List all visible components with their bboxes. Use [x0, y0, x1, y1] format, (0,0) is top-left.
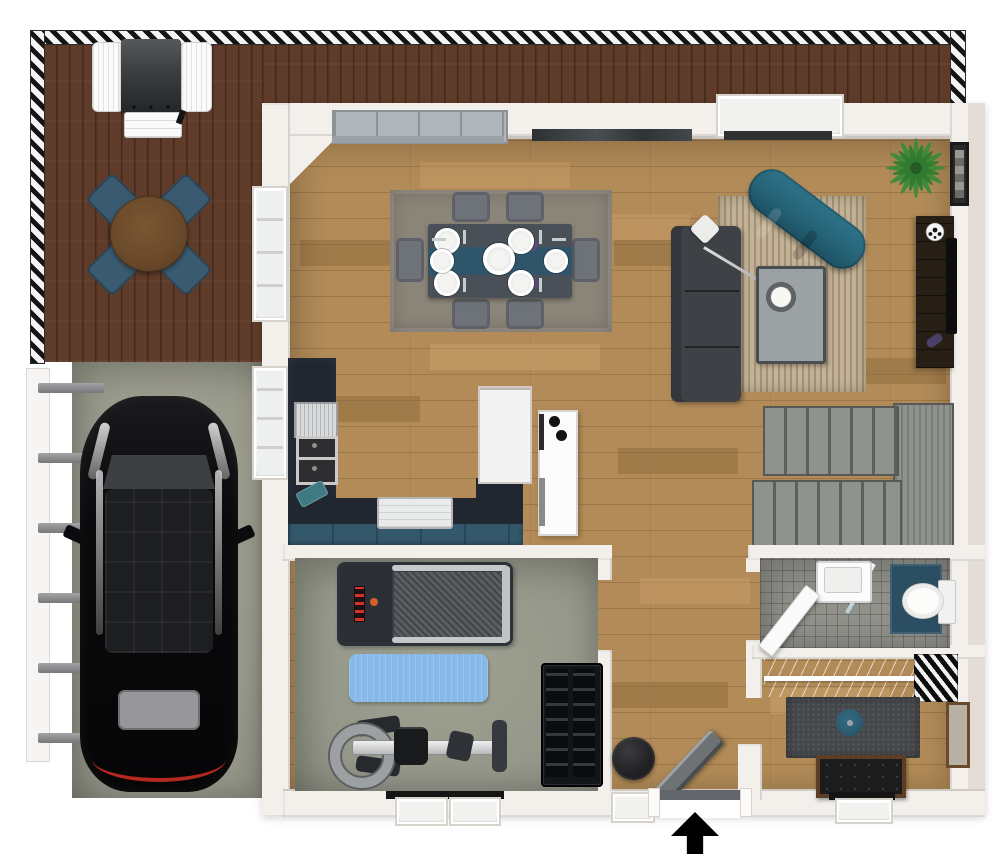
rower-beam	[352, 740, 506, 755]
island-rail	[539, 478, 545, 526]
wall-mirror[interactable]	[946, 702, 970, 768]
rower-flywheel	[330, 724, 394, 788]
burner	[549, 416, 560, 427]
entrance-arrow	[671, 812, 719, 854]
entry-side-wall	[738, 744, 762, 794]
floor-cushion-button	[847, 720, 853, 726]
range[interactable]	[294, 402, 338, 438]
car-side-glass-left	[96, 470, 103, 635]
dining-chair-bottom-1[interactable]	[452, 299, 490, 329]
grill-knobs	[128, 104, 174, 110]
garage-window-pane	[257, 371, 283, 475]
top-window-sill	[724, 131, 832, 140]
gym-window-1-pane	[400, 802, 443, 821]
outdoor-table[interactable]	[110, 196, 188, 272]
grill-body	[121, 39, 181, 113]
soccer-ball[interactable]	[925, 222, 945, 242]
rower-seat	[394, 727, 428, 765]
sofa[interactable]	[671, 226, 741, 402]
plate	[430, 249, 454, 273]
car-rear-window	[118, 690, 200, 730]
plate	[508, 270, 534, 296]
plate	[544, 249, 568, 273]
deck-railing-left	[30, 30, 45, 364]
car-side-glass-right	[215, 470, 222, 635]
grill-shelf-left	[92, 42, 124, 112]
treadmill-button	[370, 598, 378, 606]
treadmill-belt	[392, 570, 508, 642]
utensil	[463, 230, 466, 244]
hall-window-pane	[616, 797, 650, 818]
gym-window-2[interactable]	[449, 797, 501, 826]
rower-end-bar	[492, 720, 507, 772]
utensil	[552, 238, 566, 241]
tv[interactable]	[946, 238, 957, 334]
deck-window[interactable]	[252, 186, 288, 322]
garage-fence-rail	[26, 368, 50, 762]
arc-lamp-bulb	[771, 287, 791, 307]
coffee-table[interactable]	[756, 266, 826, 364]
plank-patch	[640, 578, 750, 604]
entry-opening[interactable]	[660, 800, 740, 818]
treadmill-endcap	[502, 566, 510, 642]
utensil	[539, 230, 542, 244]
closet-shelf-rail	[764, 676, 934, 681]
burner	[556, 430, 567, 441]
dining-chair-top-1[interactable]	[452, 192, 490, 222]
deck-window-pane	[257, 191, 283, 317]
counter-tray[interactable]	[377, 497, 453, 529]
entry-jamb-right	[740, 788, 752, 817]
toilet-bowl[interactable]	[902, 583, 944, 619]
wall-art-inner	[955, 150, 964, 198]
closet-window[interactable]	[835, 798, 893, 824]
centerpiece	[483, 243, 515, 275]
treadmill-display	[354, 586, 365, 622]
grill-cart	[124, 112, 182, 138]
car-glass-roof	[105, 489, 213, 653]
potted-plant[interactable]	[882, 134, 950, 202]
utensil	[539, 278, 542, 292]
treadmill-rail	[392, 565, 508, 571]
sink-drain	[312, 466, 317, 471]
grill-shelf-right	[180, 42, 212, 112]
plank-patch	[420, 162, 570, 188]
dumbbell-column-right	[573, 669, 595, 777]
sink-drain	[312, 443, 317, 448]
floor-plan	[0, 0, 1000, 854]
dining-chair-bottom-2[interactable]	[506, 299, 544, 329]
plate	[434, 270, 460, 296]
plank-patch	[618, 448, 738, 474]
dining-chair-top-2[interactable]	[506, 192, 544, 222]
yoga-mat[interactable]	[349, 654, 488, 702]
gym-right-wall-top	[598, 558, 612, 580]
plank-patch	[430, 344, 600, 370]
hanging-clothes[interactable]	[914, 654, 958, 702]
wall-art[interactable]	[950, 142, 969, 206]
entry-jamb-left	[648, 788, 660, 817]
treadmill-console	[340, 566, 392, 642]
entry-threshold	[657, 790, 743, 800]
gym-window-2-pane	[454, 802, 496, 821]
sliding-door-threshold	[332, 136, 504, 143]
deck-floor-top	[262, 38, 950, 105]
island-handle	[539, 414, 544, 450]
deck-railing-right	[950, 30, 966, 107]
utensil	[432, 238, 446, 241]
closet-window-pane	[840, 803, 888, 819]
stairs-landing[interactable]	[893, 403, 954, 552]
garage-window[interactable]	[252, 366, 288, 480]
sofa-cushion-line	[685, 346, 739, 348]
vanity-basin	[824, 567, 862, 593]
car-taillight	[92, 736, 226, 782]
top-window-pane	[721, 99, 839, 133]
dining-chair-left[interactable]	[396, 238, 424, 282]
plank-patch	[608, 682, 728, 708]
sofa-cushion-line	[685, 290, 739, 292]
stairs-lower-flight[interactable]	[752, 480, 902, 552]
fence-rung-1	[38, 383, 104, 393]
utensil	[463, 278, 466, 292]
refrigerator[interactable]	[478, 386, 532, 484]
dining-chair-right[interactable]	[572, 238, 600, 282]
media-ledge	[532, 129, 692, 141]
dumbbell-column-left	[546, 669, 568, 777]
floor-pouf[interactable]	[612, 737, 655, 780]
stairs-upper-flight[interactable]	[763, 406, 899, 476]
car-windshield	[103, 455, 215, 489]
treadmill-rail	[392, 637, 508, 643]
gym-window-1[interactable]	[395, 797, 448, 826]
